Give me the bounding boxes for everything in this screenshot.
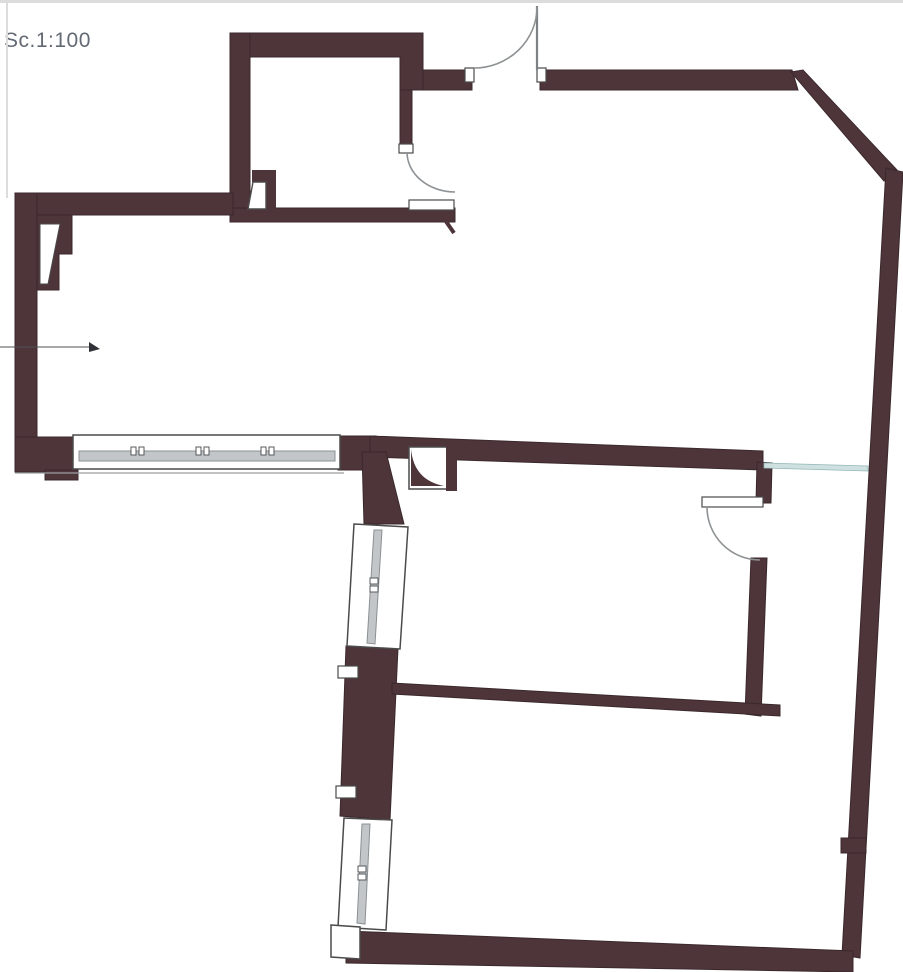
wall-leftroom-top xyxy=(15,193,233,215)
window-handle xyxy=(370,586,378,592)
window-handle xyxy=(139,447,144,455)
wall-middle-horizontal xyxy=(392,683,780,716)
wall-leftroom-left xyxy=(15,193,37,472)
window-handle xyxy=(358,866,366,872)
right-room-door-arc xyxy=(707,507,760,560)
wall-roomA-left xyxy=(230,33,250,213)
entry-door xyxy=(465,6,546,82)
roomA-door-arc xyxy=(407,152,455,192)
junction-pillar xyxy=(409,446,457,491)
page-left-edge xyxy=(6,0,8,198)
window-handle xyxy=(196,447,201,455)
junction-pillar-right-post xyxy=(446,446,457,491)
wall-roomA-inner-vertical xyxy=(400,90,412,152)
floor-plan-drawing xyxy=(0,0,903,972)
wall-diagonal-top-right xyxy=(791,70,897,181)
window-handle xyxy=(358,874,366,880)
wall-right-step xyxy=(841,838,866,853)
right-room-door xyxy=(702,497,763,560)
window-sill-box-bottom xyxy=(331,925,360,959)
roomA-niche-leaf xyxy=(248,182,266,209)
leader-arrowhead xyxy=(89,342,100,352)
right-room-door-leaf xyxy=(702,497,763,507)
exterior-notch-lower xyxy=(336,786,356,798)
page-top-edge xyxy=(0,0,903,3)
wall-divider-vertical xyxy=(745,558,767,716)
window-handle xyxy=(370,578,378,584)
window-handle xyxy=(131,447,136,455)
wall-window-sill-left-block xyxy=(15,437,78,472)
entry-door-left-jamb xyxy=(465,68,474,82)
wall-bottom xyxy=(346,931,853,972)
window-handle xyxy=(204,447,209,455)
window-handle xyxy=(261,447,266,455)
walls xyxy=(15,33,903,972)
wall-roomA-top xyxy=(233,33,423,90)
roomA-threshold xyxy=(409,200,454,210)
wall-junction-vertical xyxy=(362,452,404,524)
roomA-door-jamb xyxy=(399,144,413,153)
teal-beam-opening xyxy=(764,463,868,471)
floor-plan-canvas: Sc.1:100 xyxy=(0,0,903,972)
entry-door-arc xyxy=(474,7,537,68)
wall-window-sill-left-step xyxy=(45,470,78,480)
exterior-notch-upper xyxy=(338,666,358,678)
wall-entry-right xyxy=(540,70,798,90)
entry-door-right-jamb xyxy=(537,68,546,82)
window-handle xyxy=(269,447,274,455)
